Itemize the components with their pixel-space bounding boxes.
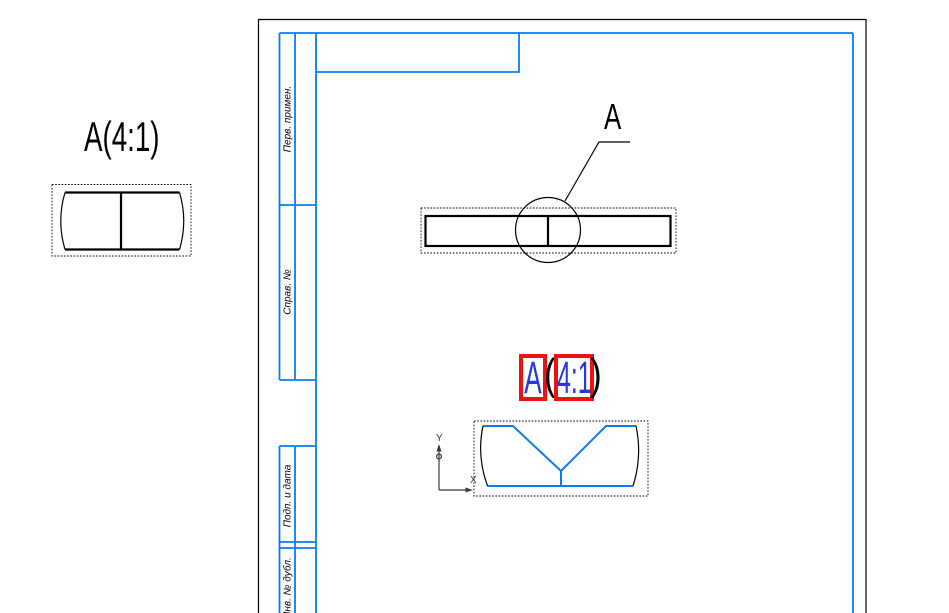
detail-shape-lines[interactable] [65,193,180,250]
detail-scale-field-box[interactable]: 4:1 [554,354,594,401]
detail-letter-field-box[interactable]: A [519,354,547,401]
callout-leader-line[interactable] [565,142,630,201]
callout-letter[interactable]: A [604,99,621,135]
external-detail-view-shape[interactable] [52,185,191,257]
plate-main-view[interactable] [421,208,676,253]
cad-canvas: A(4:1) A Перв. примен. Справ. № Подп. и … [0,0,949,613]
detail-label-paren-close: ) [590,353,602,397]
axis-lines [439,450,467,490]
title-column-perv-primen: Перв. примен. [283,86,294,152]
detail-callout[interactable] [516,142,631,263]
y-axis-arrowhead [437,444,442,452]
external-detail-view-label[interactable]: A(4:1) [84,116,159,158]
detail-shape-arcs[interactable] [481,426,639,486]
local-coordinate-axes [437,444,474,493]
drawing-linework [0,0,949,613]
x-axis-label: X [470,476,477,486]
sheet-border-line [259,20,867,613]
drawing-frame [280,33,854,613]
detail-view-shape[interactable] [474,421,648,496]
detail-scale-field-value: 4:1 [557,355,591,400]
top-stamp-box [316,33,519,72]
y-axis-label: Y [436,434,443,444]
x-axis-arrowhead [466,488,474,493]
frame-lines [280,33,854,613]
detail-shape-arcs[interactable] [61,193,184,250]
detail-highlighted-lines[interactable] [483,426,636,486]
sheet-border [259,20,867,613]
title-column-podp-i-data: Подп. и дата [283,465,294,528]
title-column-sprav-no: Справ. № [283,269,294,314]
title-column-inv-no-dubl: Инв. № дубл. [283,557,294,613]
detail-letter-field-value: A [524,355,541,400]
